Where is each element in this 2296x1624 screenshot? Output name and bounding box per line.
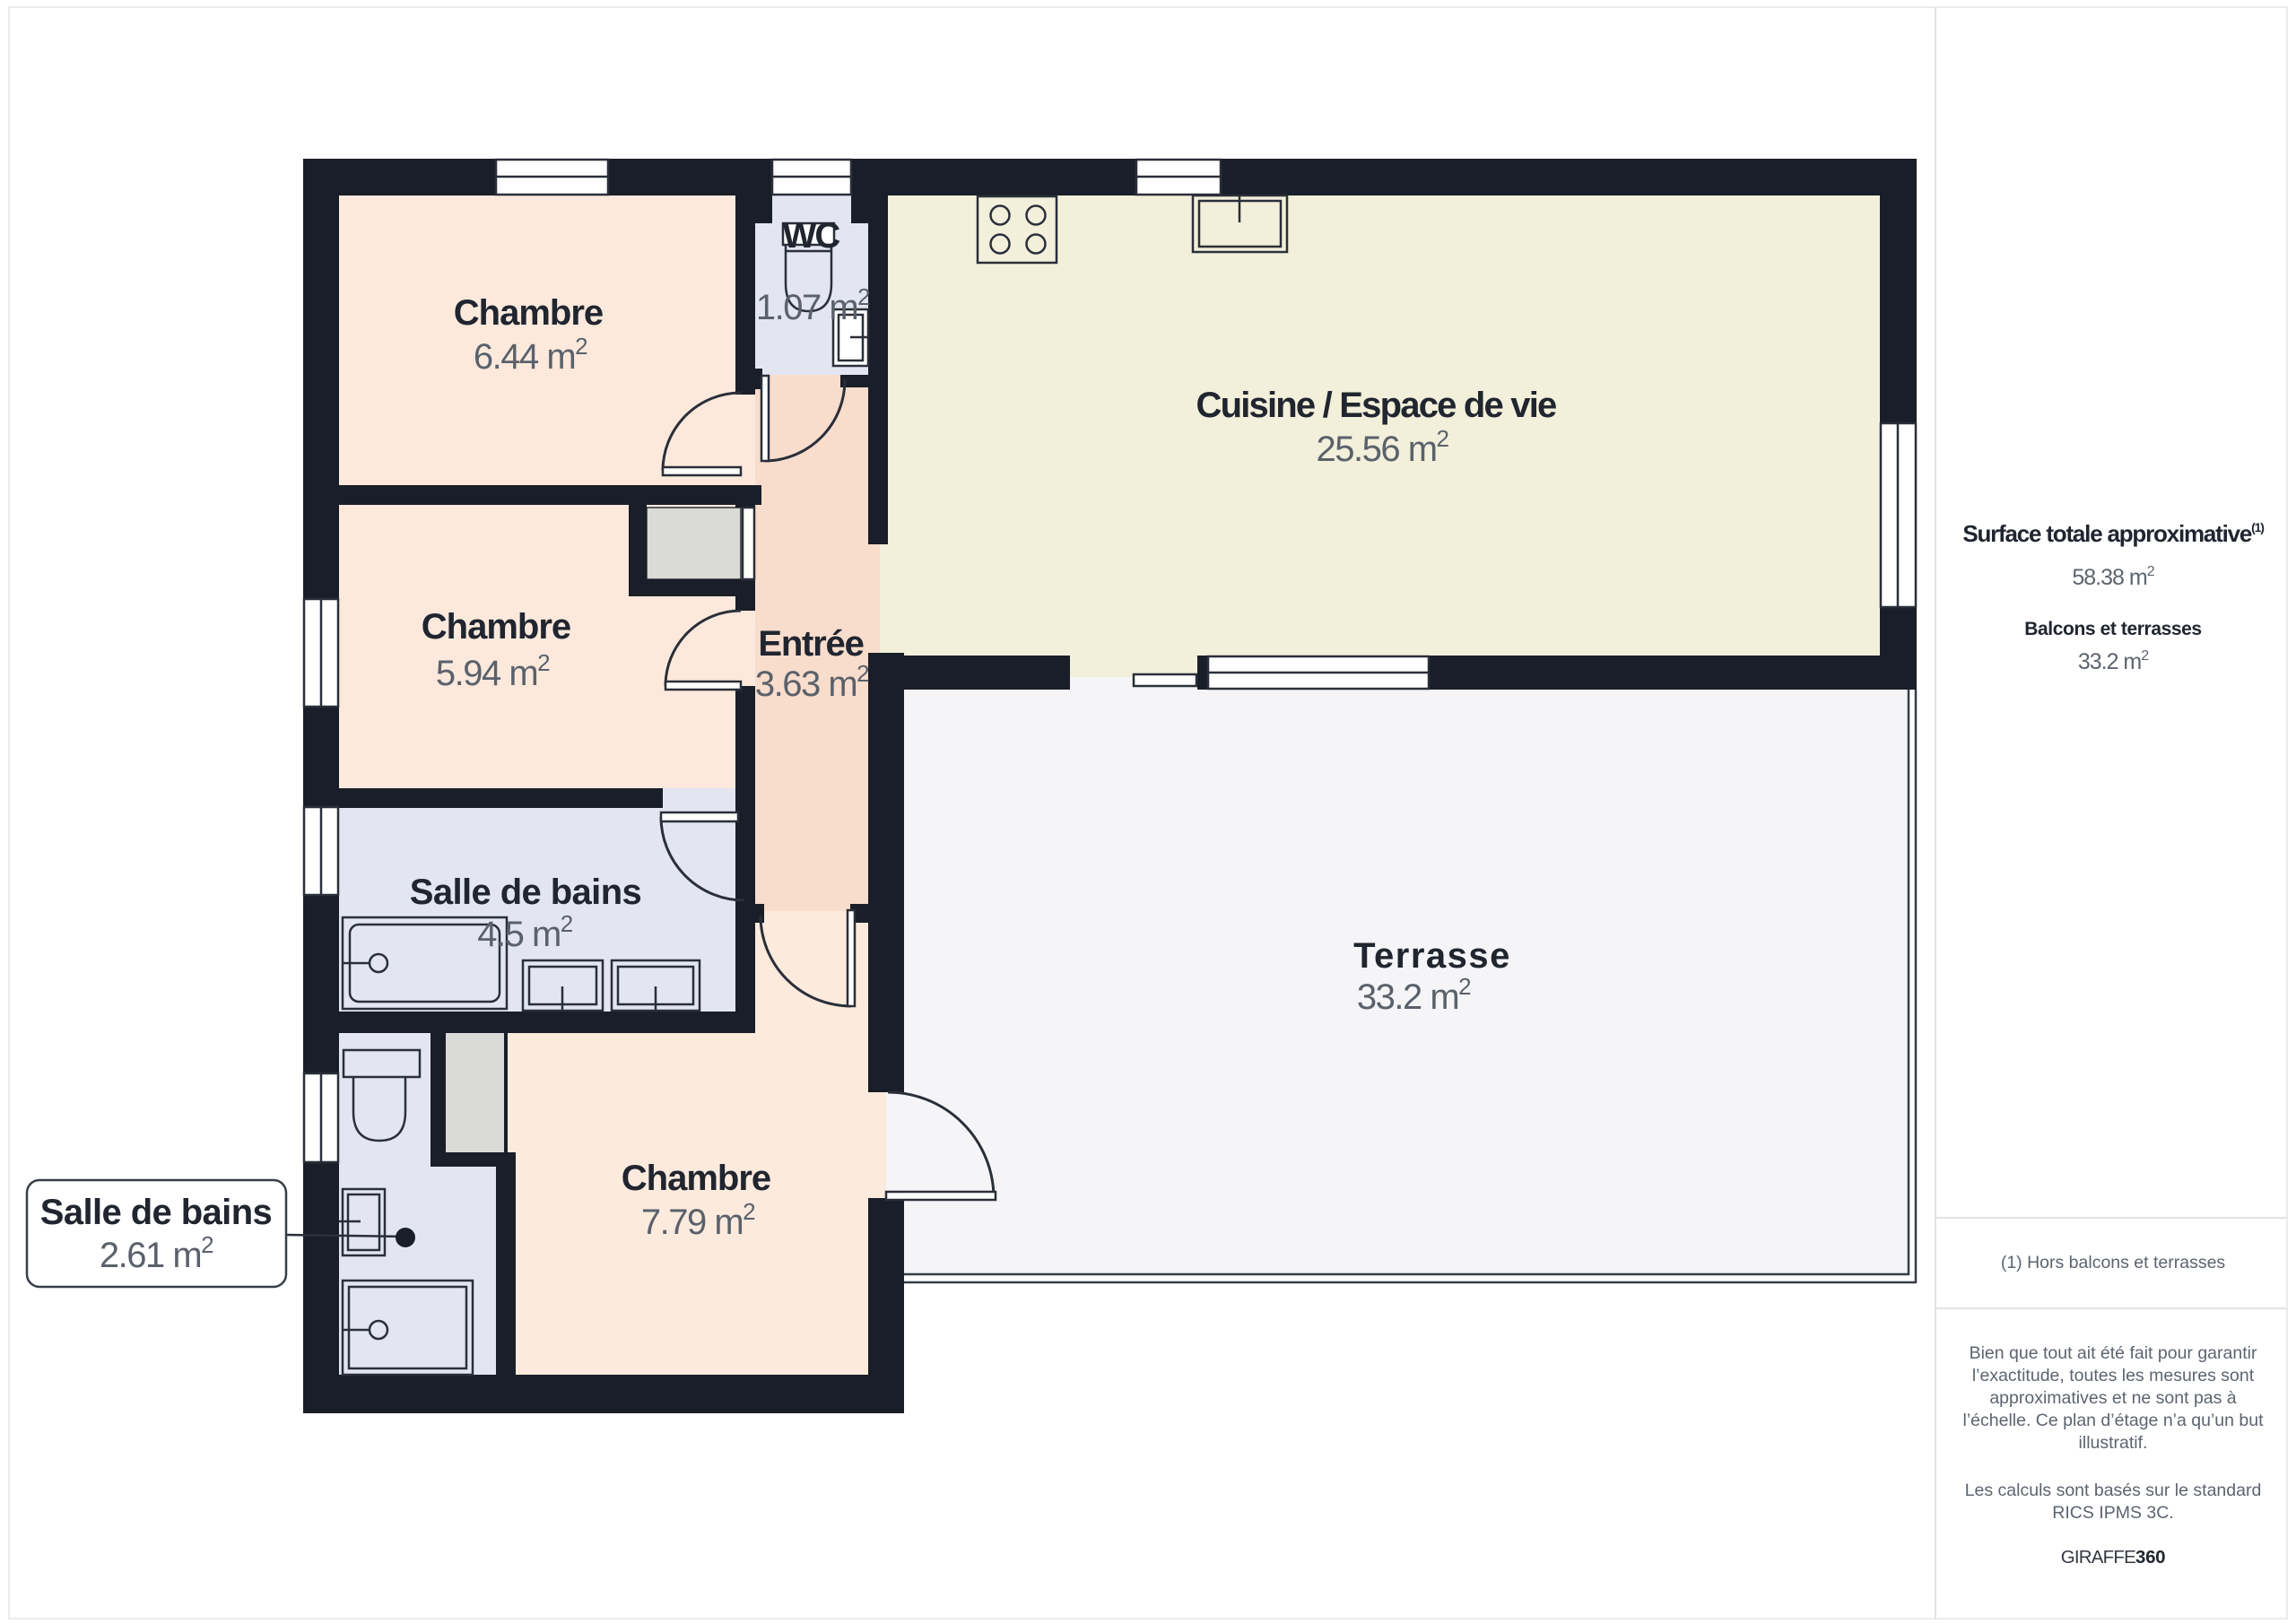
svg-text:Les calculs sont basés sur le: Les calculs sont basés sur le standard — [1965, 1481, 2262, 1500]
svg-text:58.38 m2: 58.38 m2 — [2072, 564, 2154, 590]
svg-text:4.5 m2: 4.5 m2 — [477, 910, 573, 954]
svg-text:1.07 m2: 1.07 m2 — [756, 283, 870, 327]
svg-text:Chambre: Chambre — [454, 293, 603, 333]
svg-text:Chambre: Chambre — [422, 607, 570, 647]
svg-text:Chambre: Chambre — [622, 1159, 770, 1198]
svg-text:2.61 m2: 2.61 m2 — [100, 1231, 213, 1275]
svg-text:33.2 m2: 33.2 m2 — [1357, 973, 1471, 1017]
svg-text:(1) Hors balcons et terrasses: (1) Hors balcons et terrasses — [2001, 1253, 2226, 1272]
svg-text:Salle de bains: Salle de bains — [410, 873, 641, 912]
svg-text:Entrée: Entrée — [758, 624, 863, 664]
svg-text:5.94 m2: 5.94 m2 — [436, 649, 550, 693]
svg-text:33.2 m2: 33.2 m2 — [2078, 648, 2149, 674]
svg-text:l’échelle. Ce plan d’étage n’a: l’échelle. Ce plan d’étage n’a qu’un but — [1963, 1411, 2265, 1430]
svg-text:7.79 m2: 7.79 m2 — [641, 1198, 755, 1242]
svg-text:3.63 m2: 3.63 m2 — [755, 660, 869, 704]
svg-text:GIRAFFE360: GIRAFFE360 — [2061, 1547, 2166, 1568]
svg-text:WC: WC — [783, 216, 840, 256]
svg-text:Balcons et terrasses: Balcons et terrasses — [2024, 619, 2201, 639]
svg-text:Bien que tout ait été fait pou: Bien que tout ait été fait pour garantir — [1970, 1343, 2257, 1363]
svg-text:Cuisine / Espace de vie: Cuisine / Espace de vie — [1196, 386, 1556, 425]
svg-text:25.56 m2: 25.56 m2 — [1317, 425, 1449, 469]
svg-text:Surface totale approximative(1: Surface totale approximative(1) — [1962, 520, 2264, 547]
svg-text:RICS IPMS 3C.: RICS IPMS 3C. — [2052, 1503, 2173, 1523]
svg-text:Terrasse: Terrasse — [1353, 936, 1511, 976]
svg-text:l’exactitude, toutes les mesur: l’exactitude, toutes les mesures sont — [1972, 1366, 2255, 1385]
svg-text:Salle de bains: Salle de bains — [40, 1193, 272, 1232]
svg-text:illustratif.: illustratif. — [2079, 1433, 2148, 1453]
svg-text:6.44 m2: 6.44 m2 — [474, 333, 587, 377]
svg-text:approximatives et ne sont pas: approximatives et ne sont pas à — [1989, 1388, 2236, 1408]
